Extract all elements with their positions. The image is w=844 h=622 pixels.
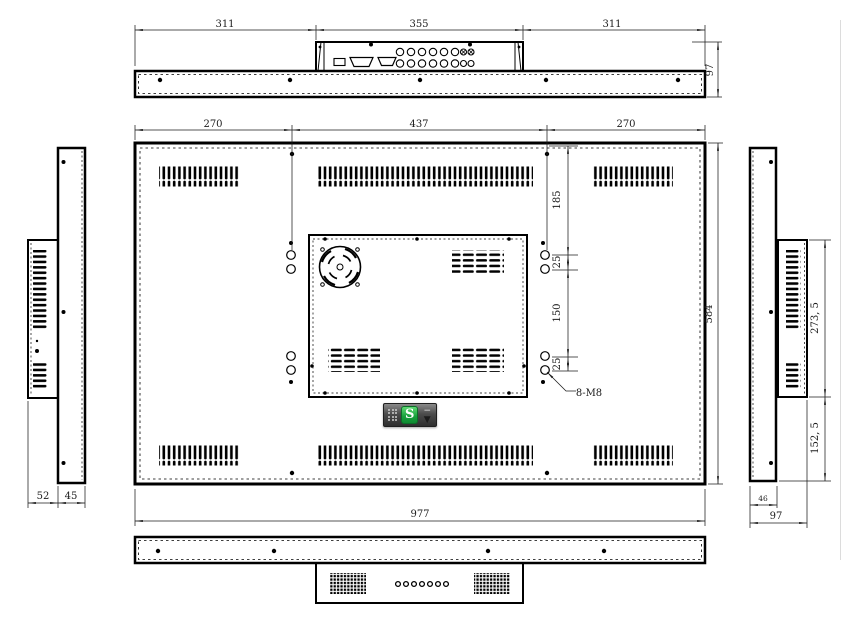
side-vent-lower-right — [786, 362, 801, 388]
back-view-drawing — [135, 143, 705, 484]
dim-label-left-body-depth: 45 — [65, 491, 78, 502]
back-panel-outline — [135, 143, 705, 484]
side-vent-upper-right — [786, 250, 801, 330]
window-edge-line — [840, 20, 841, 560]
dim-label-hole-gap-top: 25 — [552, 256, 563, 269]
speaker-grille-right — [474, 573, 510, 594]
dim-label-back-top-right: 270 — [616, 119, 635, 130]
top-view-drawing — [135, 42, 705, 97]
vga-port-icon — [350, 58, 373, 67]
dim-label-hole-span: 150 — [552, 303, 563, 322]
dim-label-hole-top-offset: 185 — [552, 190, 563, 209]
ime-logo-button[interactable]: S — [401, 406, 418, 424]
side-vent-lower — [33, 362, 48, 388]
engineering-drawing-page: 311 355 311 97 — [0, 0, 844, 622]
dim-label-right-lower-height: 152, 5 — [810, 422, 821, 454]
ime-toolbar[interactable]: S − ▼ — [383, 403, 437, 427]
bnc-connectors — [396, 48, 474, 67]
dim-label-back-width: 977 — [410, 509, 429, 520]
dim-label-top-depth: 97 — [705, 64, 716, 77]
expand-button[interactable]: ▼ — [424, 415, 431, 424]
left-side-view-drawing — [28, 148, 85, 483]
power-inlet-port — [334, 59, 345, 66]
thread-spec-label: 8-M8 — [576, 388, 602, 399]
bottom-view-drawing — [135, 537, 705, 603]
mounting-hole-dots — [289, 241, 545, 384]
dim-label-back-height: 584 — [704, 304, 715, 323]
vent-grilles-top — [159, 167, 673, 187]
monitor-dimension-drawing: 311 355 311 97 — [0, 0, 844, 622]
dim-label-hole-gap-bottom: 25 — [552, 358, 563, 371]
dim-label-right-total-depth: 97 — [770, 511, 783, 522]
bottom-view-screws — [156, 549, 606, 553]
bottom-button-row — [396, 582, 449, 587]
dim-label-top-center: 355 — [409, 19, 428, 30]
dim-label-right-body-depth: 46 — [758, 494, 768, 503]
dim-label-back-top-center: 437 — [409, 119, 428, 130]
minimize-button[interactable]: − — [423, 406, 431, 415]
dvi-port-icon — [378, 58, 396, 66]
vesa-mounting-holes — [287, 251, 550, 375]
top-view-dimensions — [135, 25, 722, 97]
right-side-view-drawing — [750, 148, 807, 481]
right-view-body — [750, 148, 776, 481]
dim-label-back-top-left: 270 — [203, 119, 222, 130]
vent-grilles-bottom — [159, 446, 673, 466]
speaker-grille-left — [330, 573, 366, 594]
dim-label-top-right: 311 — [602, 19, 621, 30]
thread-leader-line — [547, 372, 576, 391]
dim-label-top-left: 311 — [215, 19, 234, 30]
dim-label-left-cover-depth: 52 — [37, 491, 50, 502]
side-vent-upper — [33, 250, 48, 330]
cooling-fan-icon — [320, 247, 361, 288]
left-view-body — [58, 148, 85, 483]
drag-handle-dots-icon[interactable] — [386, 408, 399, 423]
dim-label-right-cover-height: 273, 5 — [810, 302, 821, 334]
cover-vent-slots — [328, 250, 504, 372]
